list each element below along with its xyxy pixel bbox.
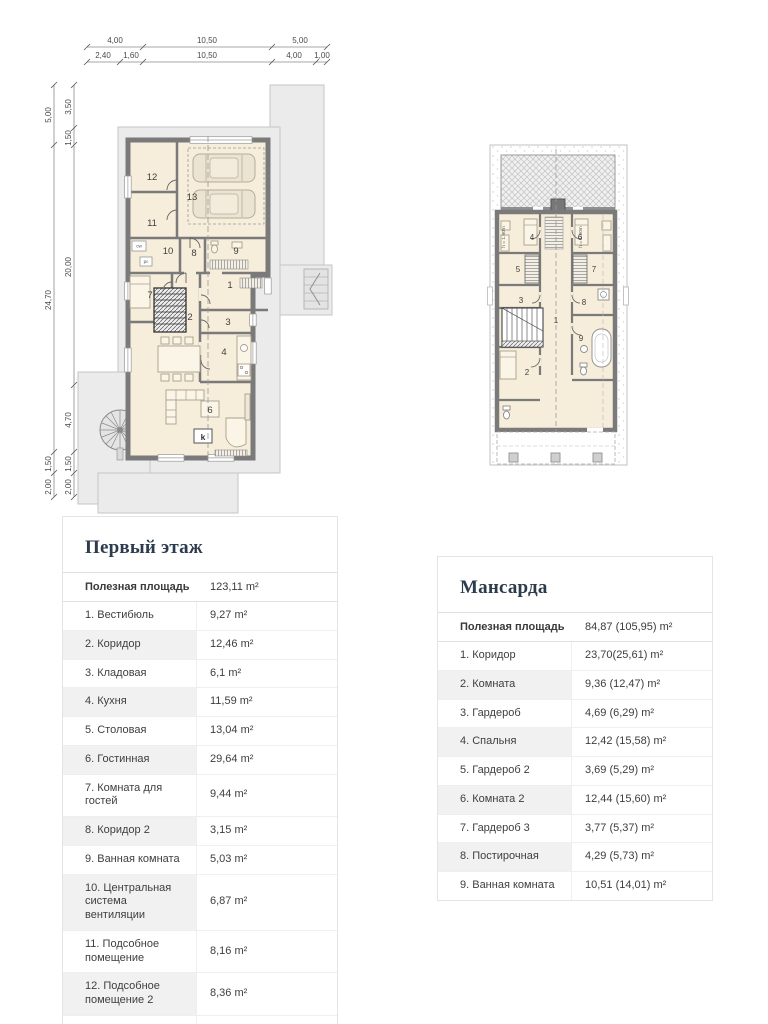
summary-label: Полезная площадь xyxy=(63,581,197,593)
table-row: 4. Кухня 11,59 m² xyxy=(63,688,337,717)
room-list: 1. Вестибюль 9,27 m² 2. Коридор 12,46 m²… xyxy=(63,602,337,1024)
table-row: 10. Центральная система вентиляции 6,87 … xyxy=(63,875,337,931)
room-label: 3. Гардероб xyxy=(438,700,572,728)
room-label: 7. Гардероб 3 xyxy=(438,815,572,843)
dim-label: 4,70 xyxy=(64,412,73,428)
dim-label: 1,00 xyxy=(314,51,330,60)
room-label: 3. Кладовая xyxy=(63,660,197,688)
exterior-stairs-icon xyxy=(304,269,328,309)
dim-label: 2,40 xyxy=(95,51,111,60)
floor-plan-page: 4,00 10,50 5,00 2,40 1,60 10,50 4,00 1,0… xyxy=(0,0,768,1024)
terrace xyxy=(497,432,615,464)
room-label: 2. Комната xyxy=(438,671,572,699)
room-label: 6. Гостинная xyxy=(63,746,197,774)
boiler-label: k xyxy=(201,432,206,442)
table-row: 1. Вестибюль 9,27 m² xyxy=(63,602,337,631)
nightstand-icon xyxy=(602,221,611,230)
piano-icon xyxy=(226,418,246,447)
room-label: 12. Подсобное помещение 2 xyxy=(63,973,197,1015)
room-number: 7 xyxy=(147,290,152,301)
wardrobe-icon xyxy=(240,278,262,288)
bathtub-icon xyxy=(592,329,611,367)
dim-label: 4,00 xyxy=(107,36,123,45)
car-icon xyxy=(193,154,255,182)
room-number: 13 xyxy=(187,192,198,203)
room-number: 8 xyxy=(191,248,196,259)
dim-label: 10,50 xyxy=(197,36,218,45)
stairs-icon xyxy=(502,308,543,347)
summary-row: Полезная площадь 123,11 m² xyxy=(63,572,337,602)
table-row: 6. Комната 2 12,44 (15,60) m² xyxy=(438,786,712,815)
room-area: 9,27 m² xyxy=(197,602,337,630)
table-row: 2. Комната 9,36 (12,47) m² xyxy=(438,671,712,700)
room-label: 8. Коридор 2 xyxy=(63,817,197,845)
dim-label: 4,00 xyxy=(286,51,302,60)
room-label: 2. Коридор xyxy=(63,631,197,659)
room-area: 4,29 (5,73) m² xyxy=(572,843,712,871)
table-row: 3. Гардероб 4,69 (6,29) m² xyxy=(438,700,712,729)
room-number: 8 xyxy=(582,298,587,307)
height-note: h = 1.90m xyxy=(578,226,584,247)
room-number: 3 xyxy=(225,317,230,328)
summary-value: 84,87 (105,95) m² xyxy=(572,621,672,633)
dim-label: 1,50 xyxy=(64,130,73,146)
room-number: 5 xyxy=(516,265,521,274)
toilet-icon xyxy=(211,241,218,253)
table-row: 11. Подсобное помещение 8,16 m² xyxy=(63,931,337,974)
room-label: 5. Столовая xyxy=(63,717,197,745)
bed-icon xyxy=(500,351,516,379)
plan-first-floor: 4,00 10,50 5,00 2,40 1,60 10,50 4,00 1,0… xyxy=(40,30,340,515)
vent-strip xyxy=(215,450,247,456)
room-label: 13. Гараж xyxy=(63,1016,197,1024)
room-label: 4. Спальня xyxy=(438,728,572,756)
room-number: 7 xyxy=(592,265,597,274)
room-area: 3,69 (5,29) m² xyxy=(572,757,712,785)
room-number: 12 xyxy=(147,172,158,183)
sink-icon xyxy=(581,346,588,353)
dim-label: 5,00 xyxy=(292,36,308,45)
dim-label: 1,50 xyxy=(64,456,73,472)
radiator-icon xyxy=(245,394,250,420)
kitchen-counter-icon xyxy=(237,336,251,380)
room-label: 9. Ванная комната xyxy=(438,872,572,900)
room-area: 13,04 m² xyxy=(197,717,337,745)
desk-icon xyxy=(603,235,611,251)
room-area: 12,44 (15,60) m² xyxy=(572,786,712,814)
room-label: 5. Гардероб 2 xyxy=(438,757,572,785)
room-area: 12,46 m² xyxy=(197,631,337,659)
room-label: 9. Ванная комната xyxy=(63,846,197,874)
room-area: 29,64 m² xyxy=(197,746,337,774)
table-row: 1. Коридор 23,70(25,61) m² xyxy=(438,642,712,671)
room-label: 4. Кухня xyxy=(63,688,197,716)
room-number: 4 xyxy=(221,347,226,358)
dim-label: 2,00 xyxy=(64,479,73,495)
table-row: 13. Гараж 48,89 m² xyxy=(63,1016,337,1024)
table-first-floor: Первый этаж Полезная площадь 123,11 m² 1… xyxy=(62,516,338,1024)
room-number: 1 xyxy=(227,280,232,291)
dim-label: 20,00 xyxy=(64,256,73,277)
room-number: 6 xyxy=(207,405,212,416)
room-list: 1. Коридор 23,70(25,61) m² 2. Комната 9,… xyxy=(438,642,712,900)
room-number: 10 xyxy=(163,246,174,257)
table-attic-title: Мансарда xyxy=(438,577,712,599)
room-number: 2 xyxy=(525,368,530,377)
room-number: 3 xyxy=(519,296,524,305)
room-area: 4,69 (6,29) m² xyxy=(572,700,712,728)
room-area: 9,44 m² xyxy=(197,781,337,809)
appliance-label: pc xyxy=(144,259,150,264)
table-row: 2. Коридор 12,46 m² xyxy=(63,631,337,660)
room-area: 8,16 m² xyxy=(197,938,337,966)
table-attic: Мансарда Полезная площадь 84,87 (105,95)… xyxy=(437,556,713,901)
dim-label: 3,50 xyxy=(64,99,73,115)
table-row: 5. Столовая 13,04 m² xyxy=(63,717,337,746)
dim-label: 24,70 xyxy=(44,289,53,310)
height-note: h = 1.90m xyxy=(501,226,507,247)
room-number: 4 xyxy=(530,233,535,242)
dim-label: 1,50 xyxy=(44,456,53,472)
table-row: 5. Гардероб 2 3,69 (5,29) m² xyxy=(438,757,712,786)
room-area: 9,36 (12,47) m² xyxy=(572,671,712,699)
room-label: 1. Коридор xyxy=(438,642,572,670)
toilet-icon xyxy=(580,363,587,375)
room-area: 10,51 (14,01) m² xyxy=(572,872,712,900)
room-area: 3,77 (5,37) m² xyxy=(572,815,712,843)
room-label: 11. Подсобное помещение xyxy=(63,931,197,973)
room-area: 6,1 m² xyxy=(197,660,337,688)
room-area: 5,03 m² xyxy=(197,846,337,874)
dim-label: 2,00 xyxy=(44,479,53,495)
table-row: 6. Гостинная 29,64 m² xyxy=(63,746,337,775)
room-area: 48,89 m² xyxy=(197,1016,337,1024)
summary-row: Полезная площадь 84,87 (105,95) m² xyxy=(438,612,712,642)
dim-label: 5,00 xyxy=(44,107,53,123)
table-row: 12. Подсобное помещение 2 8,36 m² xyxy=(63,973,337,1016)
room-label: 8. Постирочная xyxy=(438,843,572,871)
table-row: 8. Постирочная 4,29 (5,73) m² xyxy=(438,843,712,872)
washer-icon xyxy=(598,289,609,300)
table-row: 9. Ванная комната 5,03 m² xyxy=(63,846,337,875)
room-number: 9 xyxy=(579,334,584,343)
room-area: 3,15 m² xyxy=(197,817,337,845)
room-number: 9 xyxy=(233,246,238,257)
table-row: 7. Гардероб 3 3,77 (5,37) m² xyxy=(438,815,712,844)
table-row: 4. Спальня 12,42 (15,58) m² xyxy=(438,728,712,757)
room-label: 7. Комната для гостей xyxy=(63,775,197,817)
room-area: 8,36 m² xyxy=(197,980,337,1008)
room-label: 10. Центральная система вентиляции xyxy=(63,875,197,930)
table-row: 3. Кладовая 6,1 m² xyxy=(63,660,337,689)
room-number: 2 xyxy=(187,312,192,323)
void-railing xyxy=(545,217,563,249)
room-label: 6. Комната 2 xyxy=(438,786,572,814)
summary-label: Полезная площадь xyxy=(438,621,572,633)
room-number: 1 xyxy=(554,316,559,325)
summary-value: 123,11 m² xyxy=(197,581,259,593)
appliance-label: cw xyxy=(136,244,142,249)
stairs-icon xyxy=(154,288,186,332)
dim-label: 1,60 xyxy=(123,51,139,60)
room-area: 23,70(25,61) m² xyxy=(572,642,712,670)
toilet-icon xyxy=(503,406,510,419)
roof-slope xyxy=(501,155,615,214)
table-row: 9. Ванная комната 10,51 (14,01) m² xyxy=(438,872,712,900)
room-label: 1. Вестибюль xyxy=(63,602,197,630)
room-number: 11 xyxy=(147,218,157,229)
table-row: 8. Коридор 2 3,15 m² xyxy=(63,817,337,846)
car-icon xyxy=(193,190,255,218)
wardrobe-icon xyxy=(525,255,539,283)
plan-attic: 4 6 5 7 3 8 1 9 2 h = 1.90m h = 1.90m xyxy=(437,135,667,480)
wardrobe-icon xyxy=(573,255,587,283)
doormat-icon xyxy=(210,260,248,269)
room-area: 6,87 m² xyxy=(197,888,337,916)
table-first-floor-title: Первый этаж xyxy=(63,537,337,559)
room-area: 11,59 m² xyxy=(197,688,337,716)
room-area: 12,42 (15,58) m² xyxy=(572,728,712,756)
dim-label: 10,50 xyxy=(197,51,218,60)
table-row: 7. Комната для гостей 9,44 m² xyxy=(63,775,337,818)
